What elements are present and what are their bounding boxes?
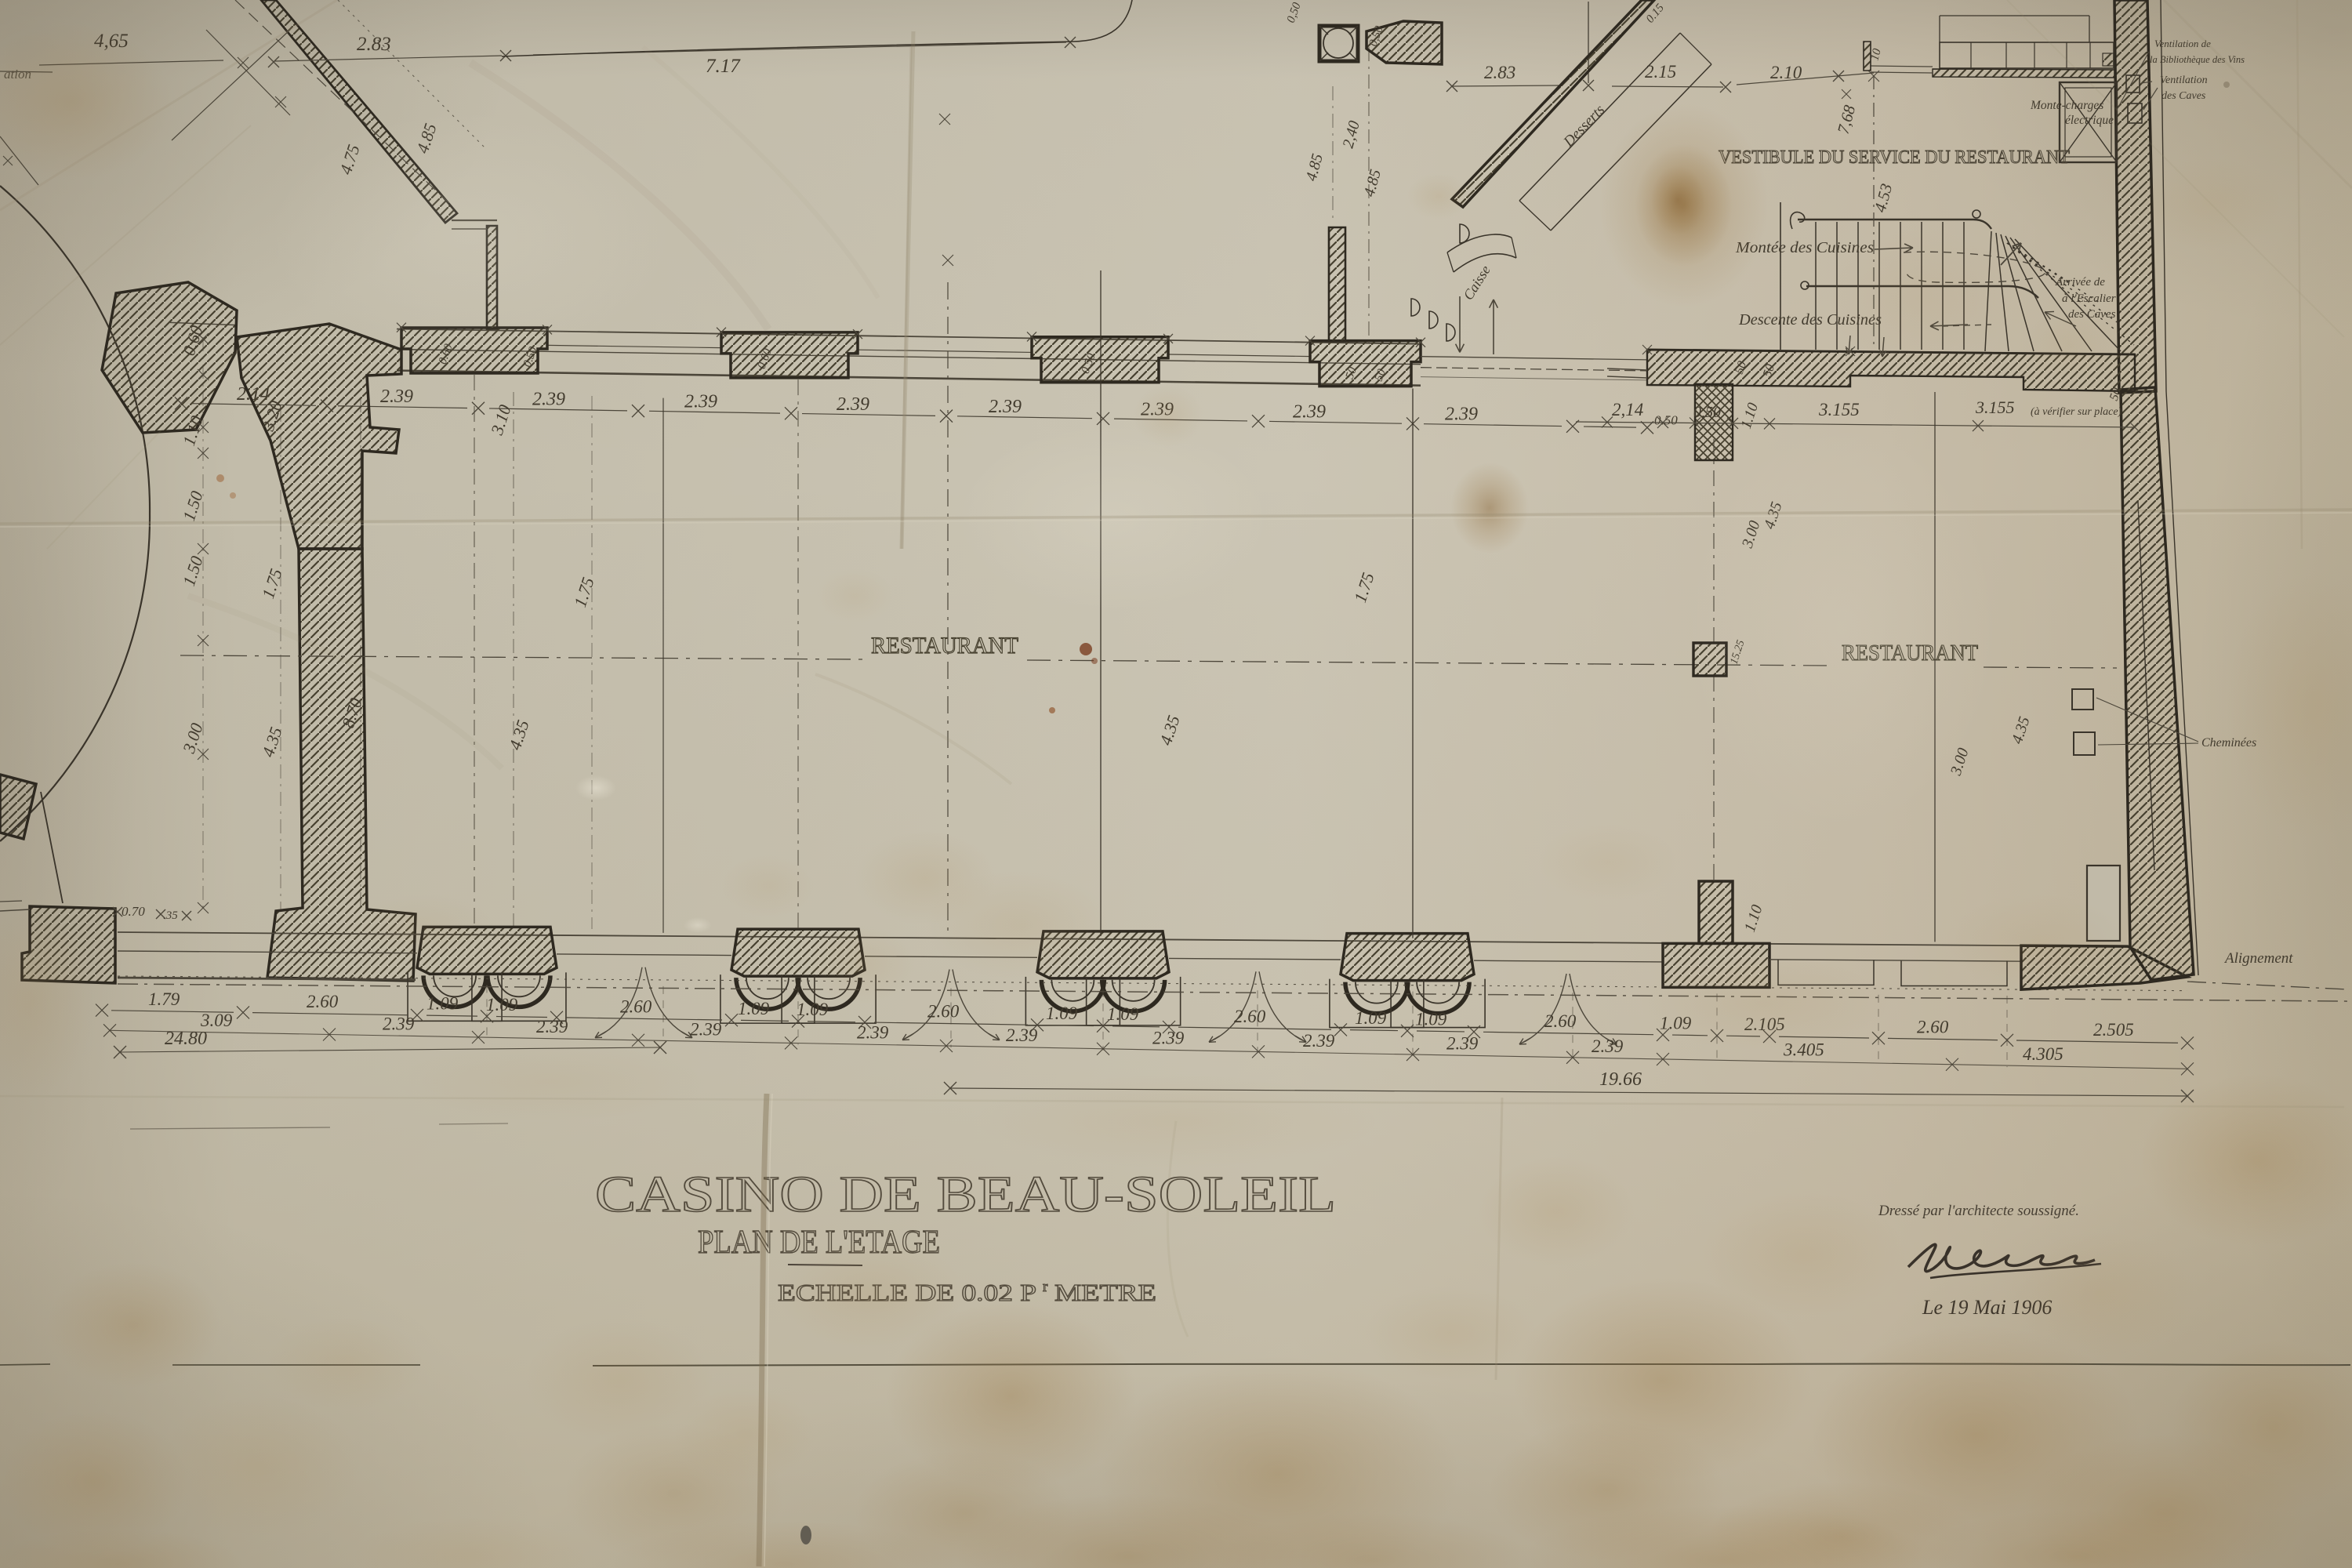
svg-text:METRE: METRE — [1054, 1279, 1156, 1306]
svg-text:2.39: 2.39 — [989, 397, 1022, 417]
svg-text:Alignement: Alignement — [2223, 950, 2293, 967]
svg-text:1.09: 1.09 — [797, 1000, 829, 1019]
svg-text:2.39: 2.39 — [857, 1022, 889, 1042]
svg-text:2.10: 2.10 — [1770, 63, 1802, 82]
svg-text:2.39: 2.39 — [383, 1014, 415, 1033]
svg-text:2.39: 2.39 — [1152, 1028, 1185, 1047]
svg-text:Ventilation: Ventilation — [2160, 74, 2208, 86]
svg-text:2.60: 2.60 — [1234, 1007, 1266, 1026]
svg-text:4.305: 4.305 — [2023, 1044, 2063, 1064]
svg-text:2.83: 2.83 — [357, 34, 391, 55]
svg-text:2.39: 2.39 — [1592, 1036, 1624, 1056]
svg-text:Monte-charges: Monte-charges — [2030, 99, 2103, 112]
svg-text:RESTAURANT: RESTAURANT — [871, 633, 1018, 659]
svg-text:0.70: 0.70 — [122, 904, 145, 919]
svg-text:r: r — [1043, 1279, 1048, 1295]
svg-text:des Caves: des Caves — [2161, 90, 2206, 102]
svg-text:19.66: 19.66 — [1599, 1069, 1642, 1090]
svg-text:2.39: 2.39 — [1303, 1031, 1335, 1051]
svg-text:Dressé par l'architecte soussi: Dressé par l'architecte soussigné. — [1878, 1203, 2079, 1219]
svg-text:2.39: 2.39 — [837, 394, 869, 415]
svg-text:2.505: 2.505 — [2093, 1020, 2134, 1040]
svg-text:2.39: 2.39 — [1006, 1025, 1038, 1045]
svg-text:2.39: 2.39 — [1293, 401, 1326, 422]
svg-text:2.60: 2.60 — [927, 1002, 960, 1022]
svg-text:CASINO DE BEAU-SOLEIL: CASINO DE BEAU-SOLEIL — [595, 1166, 1336, 1223]
svg-text:2.39: 2.39 — [536, 1017, 568, 1036]
svg-text:1.09: 1.09 — [1415, 1009, 1447, 1029]
svg-text:2.39: 2.39 — [1445, 405, 1478, 425]
svg-text:à l'Escalier: à l'Escalier — [2062, 292, 2116, 305]
svg-text:2.60: 2.60 — [1917, 1017, 1949, 1036]
svg-text:2.60: 2.60 — [1544, 1011, 1577, 1031]
svg-text:VESTIBULE DU SERVICE DU RESTAU: VESTIBULE DU SERVICE DU RESTAURANT — [1719, 147, 2070, 168]
svg-text:7.17: 7.17 — [706, 56, 741, 77]
svg-text:2.39: 2.39 — [684, 392, 717, 412]
svg-text:1.09: 1.09 — [1107, 1004, 1139, 1024]
svg-text:1.09: 1.09 — [1355, 1008, 1387, 1028]
svg-text:2.83: 2.83 — [1484, 63, 1515, 82]
svg-text:2.39: 2.39 — [690, 1020, 722, 1040]
svg-text:1.09: 1.09 — [1046, 1004, 1078, 1023]
svg-text:2.39: 2.39 — [532, 389, 565, 409]
svg-text:3.155: 3.155 — [1975, 397, 2015, 417]
svg-text:0,50: 0,50 — [1693, 404, 1721, 421]
svg-text:Arrivée de: Arrivée de — [2055, 276, 2105, 289]
svg-text:24.80: 24.80 — [165, 1029, 207, 1049]
svg-text:1.09: 1.09 — [486, 995, 518, 1014]
svg-text:3.155: 3.155 — [1818, 400, 1860, 419]
svg-text:1.09: 1.09 — [738, 999, 770, 1018]
svg-text:3.09: 3.09 — [200, 1011, 233, 1030]
svg-text:la Bibliothèque des Vins: la Bibliothèque des Vins — [2150, 54, 2245, 65]
svg-text:électrique: électrique — [2065, 114, 2114, 127]
svg-text:2,14: 2,14 — [1612, 400, 1643, 419]
svg-text:2.60: 2.60 — [620, 996, 652, 1016]
svg-text:1.79: 1.79 — [148, 989, 180, 1009]
svg-text:2.39: 2.39 — [380, 387, 413, 407]
svg-text:1.09: 1.09 — [426, 994, 459, 1014]
svg-text:2.60: 2.60 — [307, 992, 339, 1011]
svg-text:2.39: 2.39 — [1446, 1033, 1479, 1053]
svg-text:(à vérifier sur place): (à vérifier sur place) — [2031, 406, 2122, 418]
svg-text:.35: .35 — [163, 909, 178, 922]
